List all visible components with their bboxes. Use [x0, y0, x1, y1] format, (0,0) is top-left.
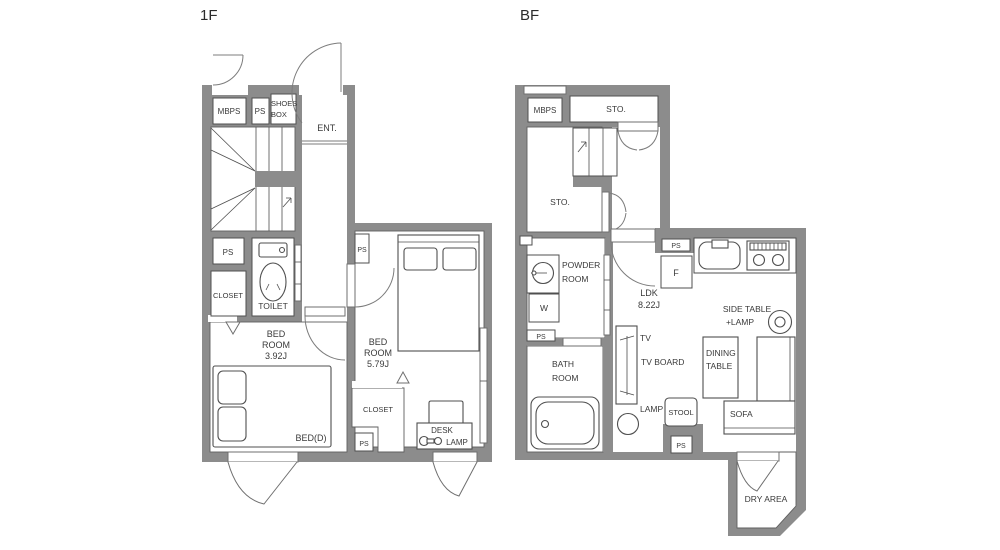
label-1f-closet-left: CLOSET	[213, 291, 243, 300]
1f-closet2-opening	[352, 381, 402, 388]
kitchen-counter-icon	[694, 238, 796, 273]
bf-ldk-door-leaf	[611, 229, 655, 242]
label-bf-powder-2: ROOM	[562, 274, 588, 284]
label-1f-toilet: TOILET	[258, 301, 288, 311]
1f-balcony-opening-left	[228, 452, 298, 462]
label-1f-ps-bedroom2: PS	[357, 247, 367, 254]
bf-bath-right-wall	[603, 346, 613, 452]
label-bf-side-table-2: +LAMP	[726, 317, 754, 327]
label-bf-dining-1: DINING	[706, 348, 736, 358]
label-1f-ps-bottom: PS	[359, 441, 369, 448]
tv-board-icon	[616, 326, 637, 404]
label-1f-bedroom2-2: ROOM	[364, 348, 392, 358]
side-table-lamp-icon	[769, 311, 792, 334]
label-bf-ps-ldk: PS	[671, 243, 681, 250]
label-bf-ps-left: PS	[536, 334, 546, 341]
bf-dry-area-opening	[737, 452, 779, 461]
label-1f-ps-mid: PS	[223, 248, 234, 257]
1f-balcony-door-swing-left	[228, 462, 297, 504]
label-1f-shoes2: BOX	[271, 110, 287, 119]
label-bf-storage-main: STO.	[550, 197, 570, 207]
bf-powder-sliding-door	[604, 255, 610, 335]
label-1f-ent: ENT.	[317, 123, 337, 133]
bathtub-icon	[531, 397, 599, 449]
label-1f-ps-top: PS	[255, 107, 266, 116]
label-bf-bath-2: ROOM	[552, 373, 578, 383]
bf-stairs-area	[573, 128, 617, 176]
1f-left-door-arc	[213, 55, 243, 85]
label-1f-bedroom2-3: 5.79J	[367, 359, 389, 369]
label-bf-tv: TV	[640, 333, 651, 343]
floor-title-1f: 1F	[200, 7, 218, 24]
label-1f-bedroom1-2: ROOM	[262, 340, 290, 350]
floor-lamp-icon	[618, 414, 639, 435]
label-1f-mbps: MBPS	[218, 107, 241, 116]
label-bf-powder-1: POWDER	[562, 260, 600, 270]
label-bf-ldk-2: 8.22J	[638, 300, 660, 310]
1f-window-right	[480, 328, 487, 443]
label-bf-mbps: MBPS	[534, 106, 557, 115]
label-1f-closet2: CLOSET	[363, 405, 393, 414]
floor-title-bf: BF	[520, 7, 539, 24]
label-1f-shoes1: SHOES	[271, 99, 297, 108]
toilet-icon	[259, 243, 287, 301]
label-bf-ldk-1: LDK	[640, 288, 658, 298]
label-bf-lamp: LAMP	[640, 404, 663, 414]
kitchen-sink-icon	[699, 240, 740, 269]
label-1f-bedroom1-3: 3.92J	[265, 351, 287, 361]
label-bf-ps-bottom: PS	[676, 443, 686, 450]
label-bf-washer: W	[540, 303, 548, 313]
bf-under-stairs-wall	[573, 176, 612, 187]
label-1f-desk: DESK	[431, 426, 453, 435]
label-1f-desk-lamp: LAMP	[446, 438, 468, 447]
1f-balcony-opening-right	[433, 452, 477, 462]
label-bf-side-table-1: SIDE TABLE	[723, 304, 772, 314]
1f-entrance-opening	[299, 85, 343, 95]
label-bf-bath-1: BATH	[552, 359, 574, 369]
floor-plans-svg: 1F	[0, 0, 1000, 550]
floor-plan-1f: 1F	[200, 7, 492, 504]
bf-top-window	[524, 86, 566, 94]
label-bf-tv-board: TV BOARD	[641, 357, 684, 367]
floor-plan-page: 1F	[0, 0, 1000, 550]
1f-toilet-sliding-door	[295, 245, 301, 301]
stove-icon	[747, 241, 789, 270]
bf-wall-small-box	[520, 236, 532, 245]
label-bf-fridge: F	[673, 268, 679, 278]
label-1f-bedroom2-1: BED	[369, 337, 388, 347]
label-bf-dry-area: DRY AREA	[745, 494, 788, 504]
label-bf-sofa: SOFA	[730, 409, 753, 419]
bf-bath-door-opening	[563, 338, 601, 346]
1f-bedroom1-door-leaf	[305, 307, 345, 316]
label-bf-storage-top: STO.	[606, 104, 626, 114]
1f-balcony-door-swing-right	[433, 462, 477, 496]
1f-bedroom2-door-leaf	[347, 264, 355, 307]
bed-single-icon	[398, 235, 479, 351]
label-bf-stool: STOOL	[668, 408, 693, 417]
1f-stair-landing-wall	[255, 171, 300, 187]
floor-plan-bf: BF	[515, 7, 806, 536]
label-1f-bedroom1-1: BED	[267, 329, 286, 339]
1f-top-left-door-opening	[212, 85, 248, 95]
label-bf-dining-2: TABLE	[706, 361, 733, 371]
label-1f-bed-d: BED(D)	[296, 433, 327, 443]
